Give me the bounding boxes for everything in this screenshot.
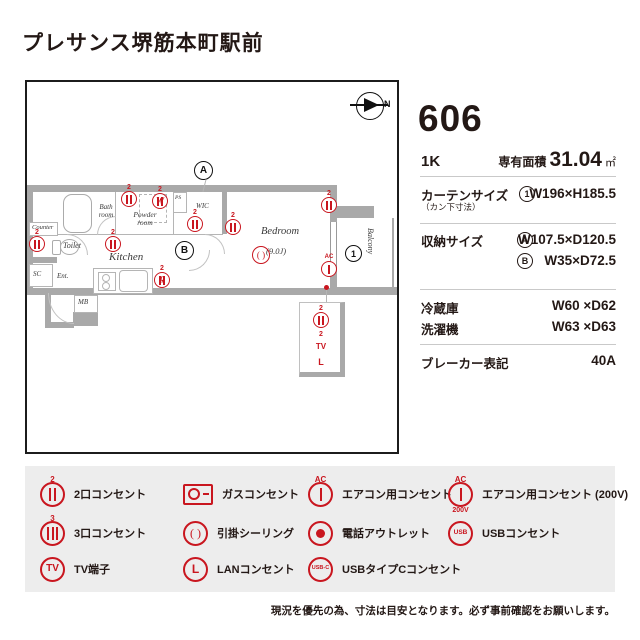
- phone-outlet-icon: [308, 521, 333, 546]
- breaker-value: 40A: [591, 353, 616, 368]
- outlet-ac: AC: [321, 261, 337, 277]
- room-label-ent: Ent.: [57, 273, 68, 281]
- area-value: 31.04: [549, 148, 602, 171]
- layout-area-row: 1K 専有面積31.04㎡: [421, 148, 616, 172]
- compass-north-label: N: [384, 99, 391, 109]
- page: プレサンス堺筋本町駅前 N 1 Balcony MB: [0, 0, 640, 640]
- washer-value: W63 ×D63: [552, 319, 616, 334]
- room-label-bedroom: Bedroom: [261, 226, 299, 238]
- legend-item-lan: L LANコンセント: [183, 554, 295, 584]
- sink: [119, 270, 148, 292]
- outlet-2p: 2: [29, 236, 45, 252]
- outlet-2p: 2: [187, 216, 203, 232]
- mark-b: B: [175, 241, 194, 260]
- legend-item-gas: ガスコンセント: [183, 479, 299, 509]
- door-arc-entry: [48, 293, 74, 324]
- breaker-label: ブレーカー表記: [421, 353, 509, 372]
- outlet-2p: 2: [105, 236, 121, 252]
- ac-200v-outlet-icon: AC200V: [448, 482, 473, 507]
- compass-arrow-icon: [364, 98, 379, 112]
- disclaimer-note: 現況を優先の為、寸法は目安となります。必ず事前確認をお願いします。: [271, 603, 615, 618]
- curtain-size-value: W196×H185.5: [529, 186, 616, 201]
- wall-toilet-stub: [27, 257, 57, 263]
- legend-item-phone: 電話アウトレット: [308, 518, 430, 548]
- outlet-2p: 2: [121, 191, 137, 207]
- storage-size-label: 収納サイズ: [421, 231, 483, 250]
- ceiling-light-icon: ( ): [252, 246, 270, 264]
- mark-1: 1: [345, 245, 362, 262]
- outlet-2p: 2: [321, 197, 337, 213]
- balcony-rail: [392, 218, 394, 289]
- divider: [420, 223, 616, 224]
- legend-item-outlet-3p: 3 3口コンセント: [40, 518, 146, 548]
- legend-item-ac-200v: AC200V エアコン用コンセント (200V): [448, 479, 628, 509]
- outlet-2p: 2: [313, 312, 329, 328]
- room-label-toilet: Toilet: [63, 242, 81, 251]
- tv-terminal-icon: TV: [40, 557, 65, 582]
- ac-outlet-icon: AC: [308, 482, 333, 507]
- lan-icon: L: [313, 354, 329, 370]
- legend-item-usbc: USB-C USBタイプCコンセント: [308, 554, 461, 584]
- room-label-bath: Bathroom: [91, 204, 121, 219]
- entry-wall-right: [73, 312, 98, 326]
- outlet-2p: 2: [225, 219, 241, 235]
- outlet-washer: 2W: [152, 193, 168, 209]
- divider: [420, 289, 616, 290]
- room-label-wic: WIC: [196, 203, 209, 211]
- room-label-sc: SC: [33, 271, 41, 279]
- page-title: プレサンス堺筋本町駅前: [22, 27, 264, 57]
- legend-item-ceiling: ( ) 引掛シーリング: [183, 518, 294, 548]
- balcony-wall-bottom: [332, 287, 397, 295]
- room-label-kitchen: Kitchen: [109, 251, 143, 263]
- outlet-fridge: 2R: [154, 272, 170, 288]
- line-hall: [33, 234, 223, 235]
- washer-label: 洗濯機: [421, 319, 459, 338]
- balcony-wall-top: [337, 206, 374, 218]
- room-label-powder: Powderroom: [127, 211, 163, 228]
- legend-item-ac: AC エアコン用コンセント: [308, 479, 452, 509]
- area-label: 専有面積: [498, 155, 546, 169]
- burner-icon: [102, 282, 110, 290]
- usb-outlet-icon: USB: [448, 521, 473, 546]
- lan-outlet-icon: L: [183, 557, 208, 582]
- legend-item-usb: USB USBコンセント: [448, 518, 560, 548]
- legend-item-tv: TV TV端子: [40, 554, 110, 584]
- room-label-balcony: Balcony: [365, 228, 374, 276]
- layout-type: 1K: [421, 153, 440, 170]
- bath-tub: [63, 194, 92, 233]
- area-unit: ㎡: [605, 157, 616, 169]
- room-label-mb: MB: [78, 299, 88, 307]
- fridge-label: 冷蔵庫: [421, 298, 459, 317]
- usbc-outlet-icon: USB-C: [308, 557, 333, 582]
- unit-number: 606: [418, 98, 483, 140]
- mark-b: B: [517, 253, 533, 269]
- divider: [420, 344, 616, 345]
- gas-outlet-icon: [183, 484, 213, 505]
- room-label-ps: PS: [175, 195, 181, 201]
- curtain-size-sublabel: （カン下寸法）: [421, 201, 481, 213]
- storage-b-value: W35×D72.5: [544, 253, 616, 268]
- ceiling-rose-icon: ( ): [183, 521, 208, 546]
- storage-a-value: W107.5×D120.5: [518, 232, 616, 247]
- fridge-value: W60 ×D62: [552, 298, 616, 313]
- burner-icon: [102, 274, 110, 282]
- outlet-2p-icon: 2: [40, 482, 65, 507]
- divider: [420, 176, 616, 177]
- outlet-3p-icon: 3: [40, 521, 65, 546]
- wall-top: [27, 185, 337, 192]
- tv-terminal-icon: 2TV: [313, 338, 329, 354]
- floor-plan: N 1 Balcony MB: [25, 80, 399, 454]
- legend-item-outlet-2p: 2 2口コンセント: [40, 479, 146, 509]
- mark-a: A: [194, 161, 213, 180]
